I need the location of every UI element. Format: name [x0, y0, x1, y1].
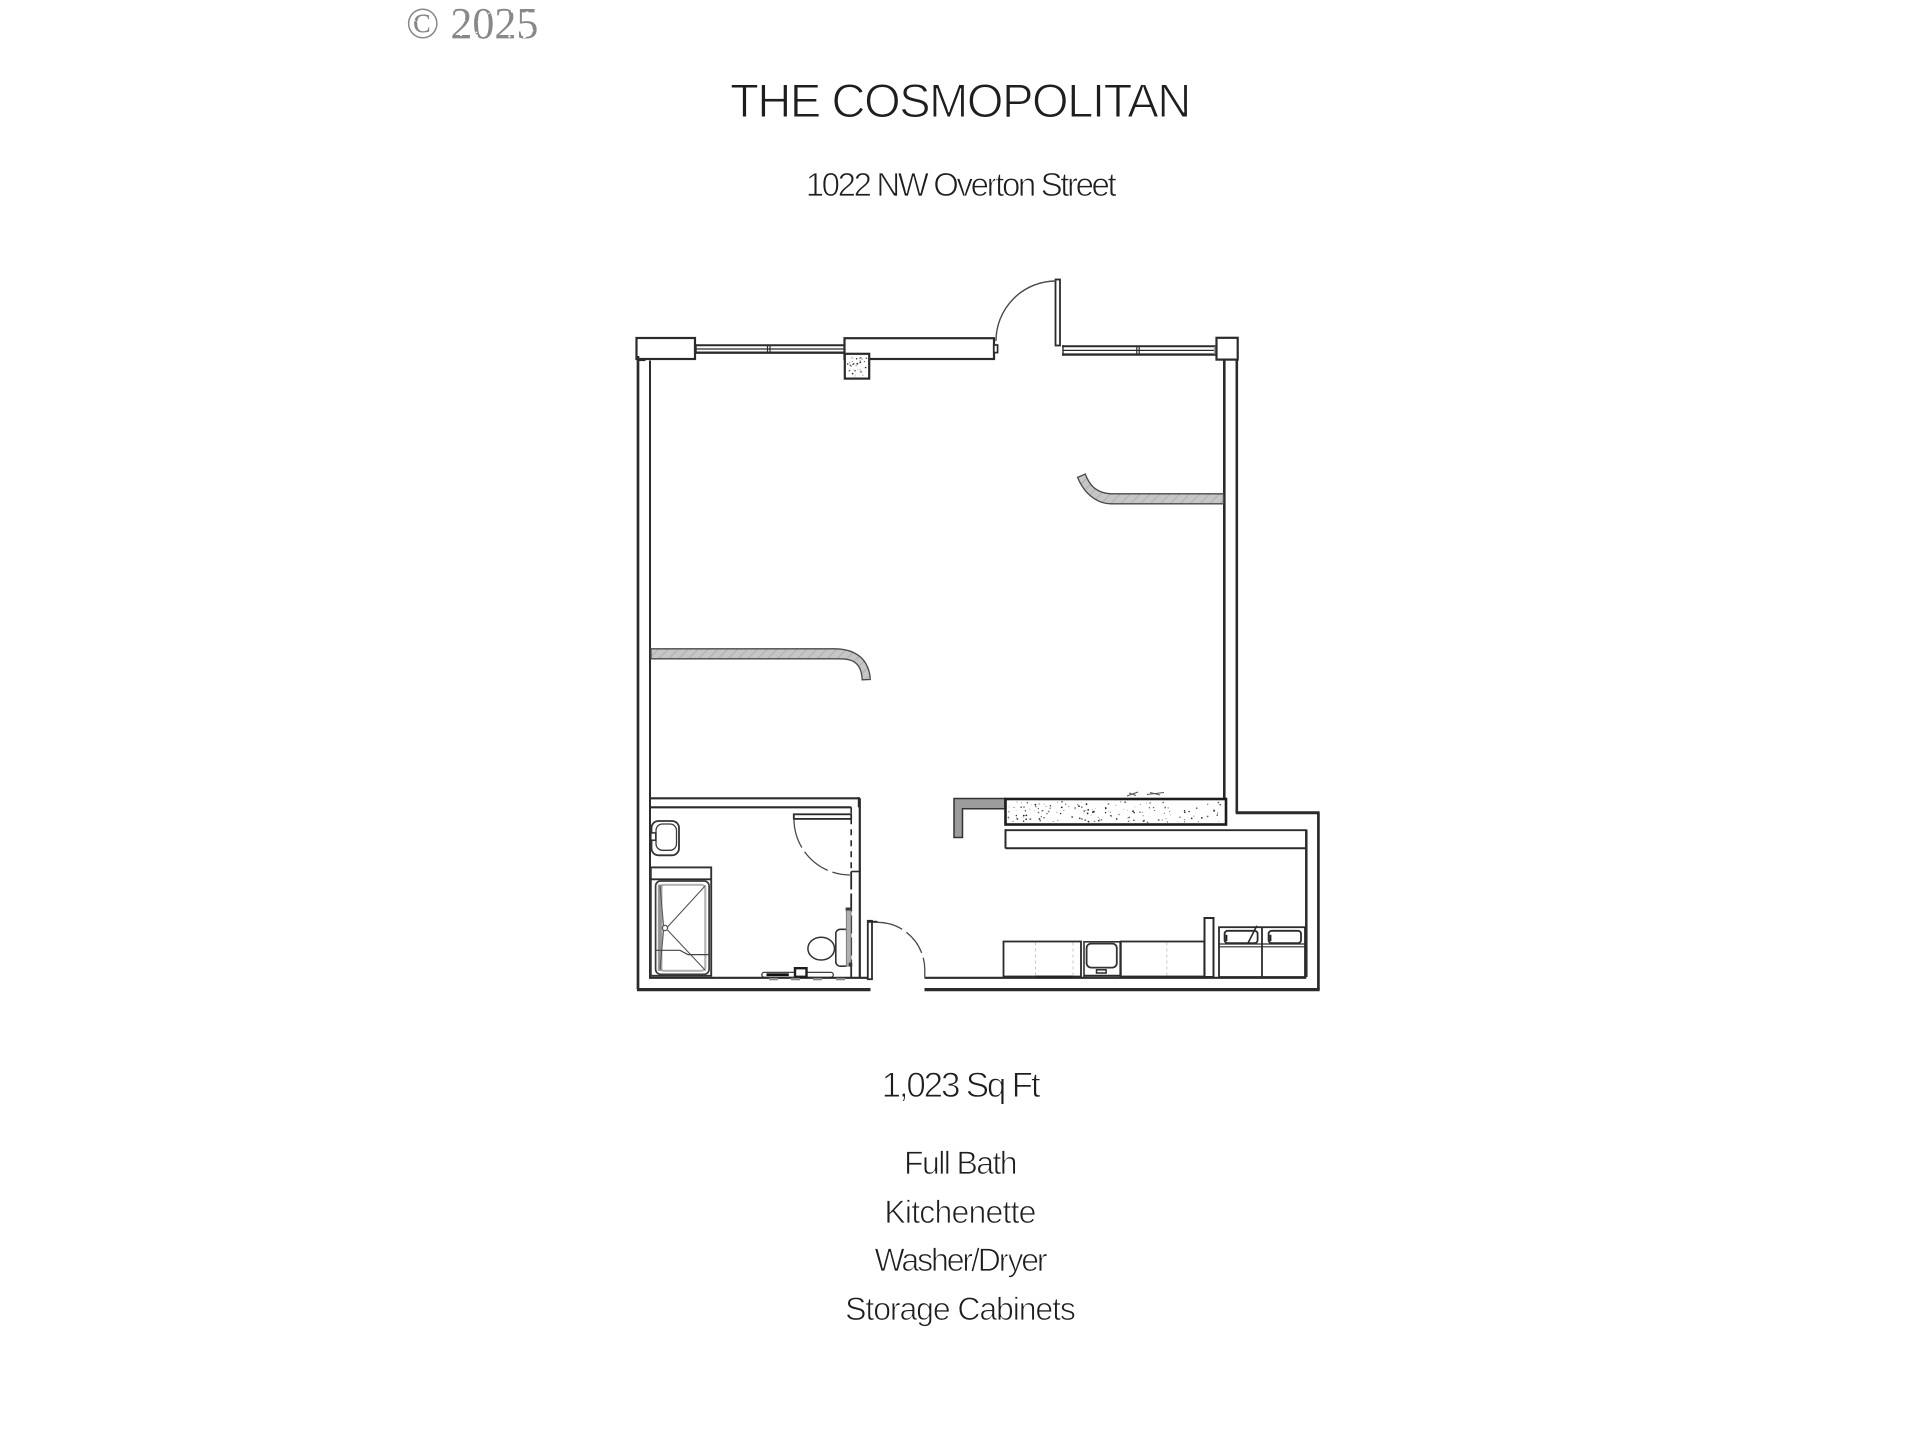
svg-text:Washer/Dryer: Washer/Dryer: [875, 1242, 1048, 1278]
svg-text:1,023 Sq Ft: 1,023 Sq Ft: [882, 1066, 1041, 1105]
svg-text:© 2025: © 2025: [406, 0, 538, 48]
svg-text:Kitchenette: Kitchenette: [884, 1194, 1035, 1230]
svg-text:THE COSMOPOLITAN: THE COSMOPOLITAN: [730, 74, 1190, 127]
svg-text:1022 NW Overton Street: 1022 NW Overton Street: [806, 166, 1117, 203]
svg-text:Full Bath: Full Bath: [904, 1145, 1016, 1181]
svg-text:Storage Cabinets: Storage Cabinets: [845, 1291, 1075, 1327]
